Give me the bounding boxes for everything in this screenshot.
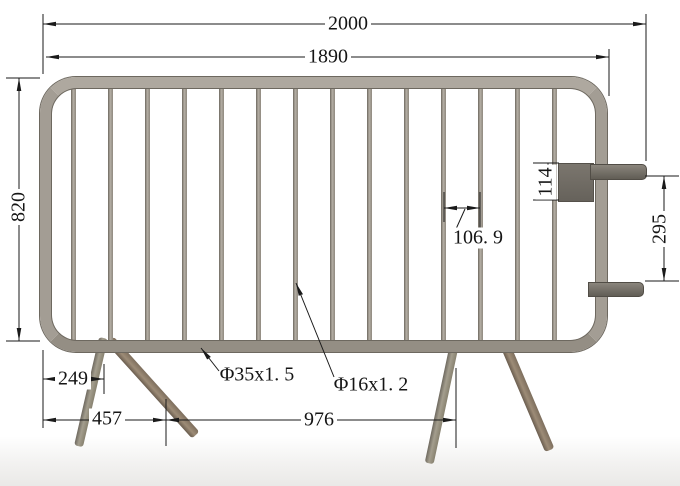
dim-overall-width-label: 2000 xyxy=(325,14,371,35)
dim-bar-spacing-label: 106. 9 xyxy=(450,228,506,249)
frame-tube-spec-label: Φ35x1. 5 xyxy=(220,365,295,386)
dim-left-leg-span-label: 457 xyxy=(89,409,125,430)
dim-frame-width-label: 1890 xyxy=(305,47,351,68)
dim-height-label: 820 xyxy=(9,189,30,225)
dim-leg-distance-label: 976 xyxy=(301,410,337,431)
dim-leg-inset-label: 249 xyxy=(55,369,91,390)
dim-hook-spacing-label: 295 xyxy=(650,211,671,247)
technical-drawing-canvas: 2000 1890 820 114 295 106. 9 249 457 976… xyxy=(0,0,680,486)
dim-hook-plate-height-label: 114 xyxy=(536,164,557,199)
infill-tube-spec-label: Φ16x1. 2 xyxy=(334,375,409,396)
